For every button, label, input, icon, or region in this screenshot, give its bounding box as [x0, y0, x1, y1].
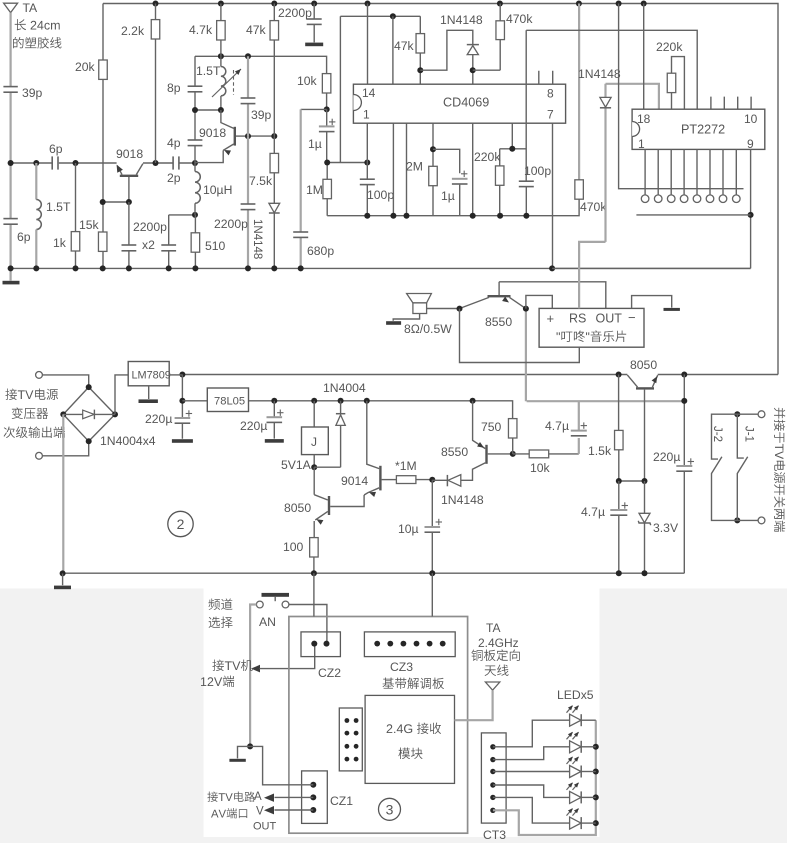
svg-text:1: 1	[363, 108, 370, 122]
svg-text:750: 750	[481, 420, 502, 434]
svg-text:2200p: 2200p	[133, 220, 167, 234]
svg-text:1.5T: 1.5T	[46, 200, 71, 214]
svg-text:4.7µ: 4.7µ	[581, 505, 605, 519]
svg-text:8550: 8550	[441, 445, 468, 459]
svg-text:4.7µ: 4.7µ	[545, 419, 569, 433]
svg-text:2M: 2M	[406, 160, 423, 174]
svg-text:J: J	[311, 435, 317, 449]
svg-text:4.7k: 4.7k	[189, 23, 213, 37]
svg-text:1N4148: 1N4148	[578, 67, 621, 81]
svg-text:2.2k: 2.2k	[121, 24, 145, 38]
svg-text:10µ: 10µ	[398, 522, 419, 536]
svg-text:10: 10	[744, 112, 758, 126]
svg-text:2p: 2p	[167, 171, 181, 185]
svg-text:39p: 39p	[251, 108, 272, 122]
svg-text:510: 510	[205, 239, 226, 253]
svg-text:15k: 15k	[79, 218, 100, 232]
svg-text:V: V	[256, 806, 264, 818]
svg-text:2200p: 2200p	[214, 217, 248, 231]
svg-text:47k: 47k	[394, 39, 415, 53]
svg-text:9018: 9018	[116, 147, 143, 161]
svg-text:8050: 8050	[284, 501, 311, 515]
svg-text:CT3: CT3	[483, 828, 506, 842]
svg-text:−: −	[628, 310, 636, 325]
svg-text:470k: 470k	[506, 12, 533, 26]
svg-text:x2: x2	[142, 238, 155, 252]
svg-text:100: 100	[283, 540, 304, 554]
svg-text:CZ1: CZ1	[330, 794, 353, 808]
svg-text:470k: 470k	[580, 200, 607, 214]
svg-text:CD4069: CD4069	[443, 96, 489, 110]
svg-text:2200p: 2200p	[278, 6, 312, 20]
svg-text:1k: 1k	[53, 236, 67, 250]
svg-text:3: 3	[386, 801, 394, 817]
svg-text:TA: TA	[23, 1, 39, 15]
svg-text:2: 2	[177, 516, 185, 532]
svg-text:220k: 220k	[656, 40, 683, 54]
svg-text:1µ: 1µ	[441, 189, 455, 203]
svg-text:47k: 47k	[246, 23, 267, 37]
svg-text:7: 7	[547, 108, 554, 122]
svg-text:PT2272: PT2272	[681, 123, 725, 137]
svg-text:10k: 10k	[530, 461, 551, 475]
svg-text:100p: 100p	[367, 188, 394, 202]
svg-text:5V1A: 5V1A	[281, 458, 312, 472]
svg-text:8550: 8550	[485, 315, 512, 329]
svg-text:TA: TA	[486, 621, 500, 635]
svg-text:8050: 8050	[630, 358, 657, 372]
svg-text:14: 14	[362, 86, 376, 100]
svg-text:A: A	[254, 791, 262, 803]
svg-text:1M: 1M	[306, 183, 323, 197]
svg-text:1N4004: 1N4004	[323, 381, 366, 395]
svg-text:2.4GHz: 2.4GHz	[478, 636, 519, 650]
svg-text:1: 1	[638, 137, 645, 151]
svg-text:*1M: *1M	[395, 459, 417, 473]
svg-text:9014: 9014	[341, 474, 368, 488]
svg-text:6p: 6p	[17, 230, 31, 244]
svg-text:CZ3: CZ3	[390, 660, 413, 674]
svg-text:1N4004x4: 1N4004x4	[100, 434, 156, 448]
svg-text:7.5k: 7.5k	[249, 174, 273, 188]
svg-text:220µ: 220µ	[240, 419, 267, 433]
svg-text:1µ: 1µ	[308, 137, 322, 151]
svg-text:LM7809: LM7809	[132, 370, 171, 382]
svg-text:8: 8	[547, 87, 554, 101]
svg-text:6p: 6p	[49, 142, 63, 156]
svg-text:20k: 20k	[75, 60, 96, 74]
svg-text:1.5T: 1.5T	[196, 64, 221, 78]
svg-text:100p: 100p	[524, 164, 551, 178]
svg-text:J-2: J-2	[711, 426, 723, 442]
svg-text:CZ2: CZ2	[318, 666, 341, 680]
svg-text:1.5k: 1.5k	[588, 444, 612, 458]
svg-text:1N4148: 1N4148	[441, 493, 484, 507]
svg-text:39p: 39p	[22, 86, 43, 100]
svg-text:8p: 8p	[167, 81, 181, 95]
svg-text:1N4148: 1N4148	[440, 13, 483, 27]
svg-text:220µ: 220µ	[145, 412, 172, 426]
svg-text:18: 18	[637, 112, 651, 126]
svg-text:RS: RS	[569, 312, 586, 326]
svg-text:9018: 9018	[199, 126, 226, 140]
svg-text:J-1: J-1	[743, 426, 755, 442]
svg-text:AN: AN	[259, 615, 276, 629]
svg-text:220k: 220k	[474, 150, 501, 164]
svg-text:9: 9	[747, 137, 754, 151]
svg-text:3.3V: 3.3V	[653, 521, 679, 535]
svg-text:1N4148: 1N4148	[251, 219, 263, 259]
svg-text:OUT: OUT	[253, 821, 277, 833]
svg-text:220µ: 220µ	[653, 450, 680, 464]
svg-text:680p: 680p	[307, 244, 334, 258]
svg-text:4p: 4p	[167, 136, 181, 150]
svg-text:8Ω/0.5W: 8Ω/0.5W	[404, 322, 452, 336]
svg-text:+: +	[547, 311, 555, 326]
svg-text:OUT: OUT	[596, 312, 623, 326]
svg-text:10k: 10k	[297, 74, 318, 88]
svg-text:78L05: 78L05	[214, 396, 245, 408]
svg-text:LEDx5: LEDx5	[557, 688, 594, 702]
svg-text:10µH: 10µH	[203, 183, 232, 197]
